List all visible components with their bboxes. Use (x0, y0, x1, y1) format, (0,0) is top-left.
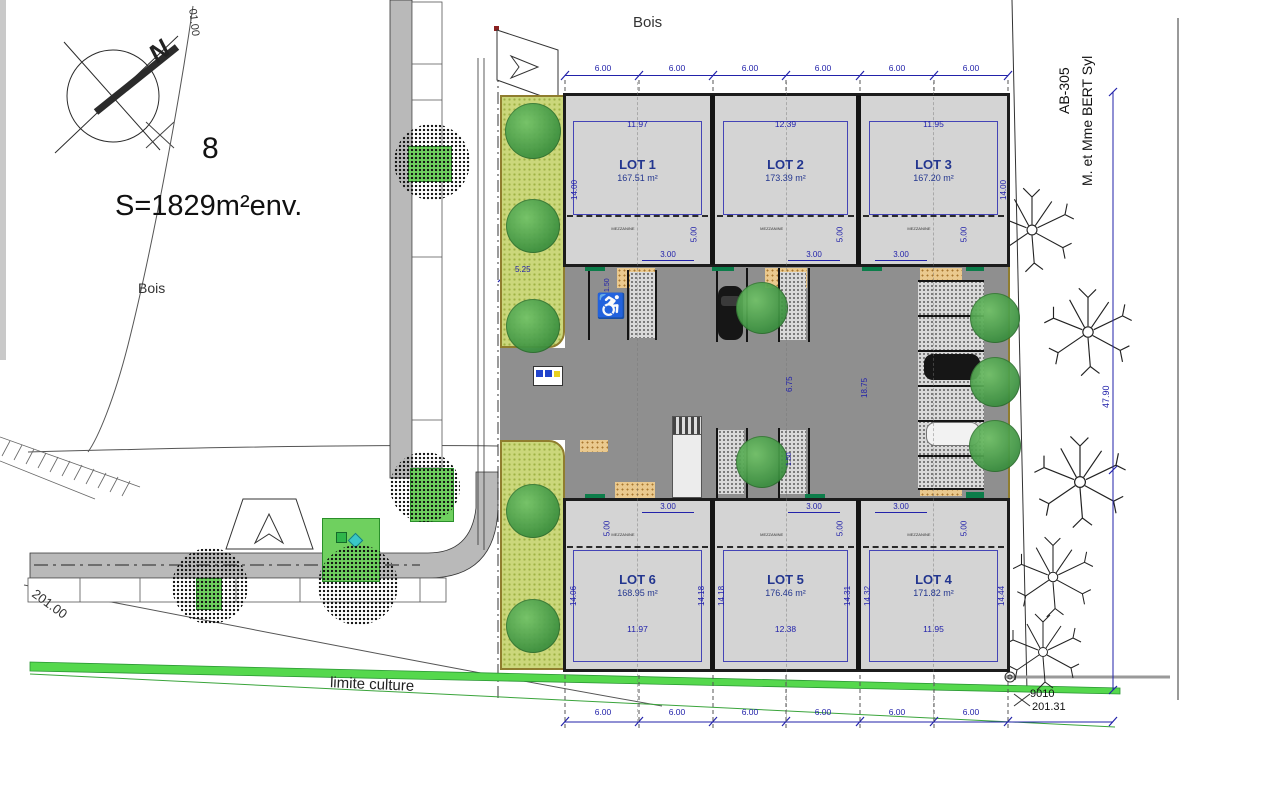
mezzanine-line (717, 546, 854, 548)
lot-area-label: 168.95 m² (565, 588, 710, 598)
round-tree (736, 436, 788, 488)
lot-dim-frame (869, 550, 998, 662)
stall-line (808, 268, 810, 342)
courtyard-entrance (500, 348, 565, 440)
dim-label-top: 6.00 (882, 63, 912, 73)
mezzanine-depth-dim: 5.00 (836, 521, 845, 537)
lot5-depth-left-dim: 14.18 (717, 586, 726, 606)
lot-3: 11.95 LOT 3 167.20 m² MEZZANINE 5.00 3.0… (861, 95, 1006, 265)
culture-limit-label: limite culture (330, 674, 415, 695)
surface-label: S=1829m²env. (115, 190, 302, 223)
utility-box-cell (545, 370, 552, 377)
dim-label-bottom: 6.00 (735, 707, 765, 717)
dim-label-bottom: 6.00 (956, 707, 986, 717)
mezzanine-label: MEZZANINE (907, 226, 930, 231)
lot-area-label: 167.20 m² (861, 173, 1006, 183)
utility-box-cell (536, 370, 543, 377)
lot5-depth-right-dim: 14.31 (843, 586, 852, 606)
mezzanine-line (717, 215, 854, 217)
mezzanine-depth-dim: 5.00 (690, 227, 699, 243)
lot-2: 12.39 LOT 2 173.39 m² MEZZANINE 5.00 3.0… (715, 95, 856, 265)
round-tree (970, 357, 1020, 407)
hedge-offset-dim: 1.50 (604, 278, 611, 292)
mezzanine-line (567, 215, 708, 217)
dim-label-top: 6.00 (808, 63, 838, 73)
lot-width-dim: 12.38 (715, 624, 856, 634)
lot-area-label: 167.51 m² (565, 173, 710, 183)
bois-label-top: Bois (633, 14, 662, 31)
lot-label: LOT 5 (715, 572, 856, 587)
lot-5: 12.38 LOT 5 176.46 m² MEZZANINE 5.00 3.0… (715, 500, 856, 670)
round-tree (506, 599, 560, 653)
truck-body (672, 434, 702, 498)
lot-area-label: 176.46 m² (715, 588, 856, 598)
door-width-dim: 3.00 (642, 502, 694, 513)
survey-point-level: 201.31 (1032, 701, 1066, 713)
stall-line (655, 270, 657, 340)
round-tree (505, 103, 561, 159)
east-boundary (1012, 0, 1027, 692)
lot3-depth-dim: 14.00 (999, 180, 1008, 200)
door-width-dim: 3.00 (875, 502, 927, 513)
dim-label-bottom: 6.00 (882, 707, 912, 717)
lot4-depth-right-dim: 14.44 (997, 586, 1006, 606)
utility-box-cell (554, 371, 560, 377)
parcel-number: 8 (202, 132, 219, 166)
lot-label: LOT 3 (861, 157, 1006, 172)
mezzanine-label: MEZZANINE (760, 532, 783, 537)
paved-patch (615, 482, 655, 498)
lot-4: 11.95 LOT 4 171.82 m² MEZZANINE 5.00 3.0… (861, 500, 1006, 670)
truck-cab (672, 416, 702, 436)
mezzanine-line (567, 546, 708, 548)
dim-label-top: 6.00 (735, 63, 765, 73)
lot-width-dim: 11.97 (565, 119, 710, 129)
lot1-depth-dim: 14.00 (570, 180, 579, 200)
lot-1: 11.97 LOT 1 167.51 m² MEZZANINE 5.00 3.0… (565, 95, 710, 265)
court-total-height-dim: 18.75 (860, 378, 869, 398)
cross-mark (146, 122, 174, 148)
lot6-depth-right-dim: 14.18 (697, 586, 706, 606)
site-plan: ♿ (0, 0, 1274, 797)
stall-line (808, 428, 810, 498)
stall-line (918, 350, 984, 352)
round-tree (970, 293, 1020, 343)
stall-line (918, 488, 984, 490)
lot-6: 11.97 LOT 6 168.95 m² MEZZANINE 5.00 3.0… (565, 500, 710, 670)
bushy-tree (394, 124, 470, 200)
bushy-tree (390, 452, 460, 522)
lot6-depth-left-dim: 14.06 (569, 586, 578, 606)
strip-width-dim: 5.25 (515, 266, 531, 274)
accessible-parking-icon: ♿ (596, 292, 626, 321)
bushy-tree (318, 545, 398, 625)
mezzanine-depth-dim: 5.00 (960, 521, 969, 537)
court-height-dim: 6.75 (785, 376, 794, 392)
stall-line (588, 270, 590, 340)
survey-point-id: 9010 (1030, 688, 1054, 700)
mezzanine-depth-dim: 5.00 (836, 227, 845, 243)
lot-label: LOT 4 (861, 572, 1006, 587)
mezzanine-label: MEZZANINE (611, 532, 634, 537)
slope-hatching (0, 437, 140, 499)
dim-label-top: 6.00 (662, 63, 692, 73)
parking-stall (630, 272, 655, 338)
lot-width-dim: 11.95 (861, 119, 1006, 129)
mezzanine-line (863, 215, 1004, 217)
lot-area-label: 173.39 m² (715, 173, 856, 183)
round-tree (736, 282, 788, 334)
marker-square-green (336, 532, 347, 543)
dim-label-bottom: 6.00 (662, 707, 692, 717)
round-tree (506, 484, 560, 538)
north-road (390, 0, 412, 478)
bushy-tree (172, 548, 248, 624)
lot-label: LOT 6 (565, 572, 710, 587)
lot4-depth-left-dim: 14.32 (863, 586, 872, 606)
neighbor-owner-label: M. et Mme BERT Syl (1079, 56, 1095, 186)
lot-label: LOT 1 (565, 157, 710, 172)
door-width-dim: 3.00 (788, 250, 840, 261)
door-width-dim: 3.00 (642, 250, 694, 261)
lot-dim-frame (573, 550, 702, 662)
bois-label-left: Bois (138, 280, 165, 296)
paved-patch (580, 440, 608, 452)
round-tree (506, 299, 560, 353)
dim-label-bottom: 6.00 (808, 707, 838, 717)
stall-line (627, 270, 629, 340)
lot-label: LOT 2 (715, 157, 856, 172)
dim-label-bottom: 6.00 (588, 707, 618, 717)
east-length-dim: 47.90 (1101, 385, 1111, 408)
dim-label-top: 6.00 (588, 63, 618, 73)
dim-label-top: 6.00 (956, 63, 986, 73)
stall-line (918, 280, 984, 282)
hedge-offset-dim: 1.50 (786, 452, 793, 466)
mezzanine-line (863, 546, 1004, 548)
lot-width-dim: 11.97 (565, 624, 710, 634)
mezzanine-depth-dim: 5.00 (960, 227, 969, 243)
lot-width-dim: 12.39 (715, 119, 856, 129)
mezzanine-label: MEZZANINE (907, 532, 930, 537)
round-tree (969, 420, 1021, 472)
mezzanine-label: MEZZANINE (611, 226, 634, 231)
lot-area-label: 171.82 m² (861, 588, 1006, 598)
lot-width-dim: 11.95 (861, 624, 1006, 634)
mezzanine-label: MEZZANINE (760, 226, 783, 231)
mezzanine-depth-dim: 5.00 (602, 521, 611, 537)
lot-dim-frame (723, 550, 848, 662)
neighbor-parcel-label: AB-305 (1056, 67, 1072, 114)
door-width-dim: 3.00 (788, 502, 840, 513)
door-width-dim: 3.00 (875, 250, 927, 261)
sidewalk-bays (28, 2, 446, 602)
round-tree (506, 199, 560, 253)
